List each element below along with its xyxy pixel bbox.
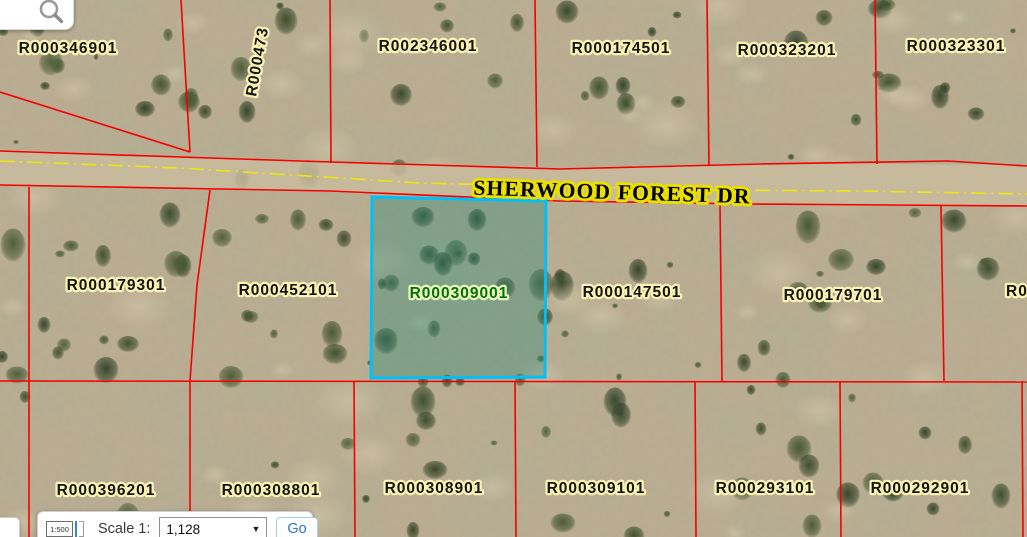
parcel-label: R000323201 [738, 42, 837, 59]
corner-toolbar-partial[interactable] [0, 517, 20, 537]
parcel-overlay: SHERWOOD FOREST DR R000346901 R002346001… [0, 0, 1027, 537]
scale-combobox[interactable]: ▼ [159, 517, 267, 537]
parcel-label: R000346901 [19, 40, 118, 57]
parcel-label: R000293101 [716, 480, 815, 497]
parcel-label: R000174501 [572, 40, 671, 57]
parcel-label: R000452101 [239, 282, 338, 299]
parcel-label: R000179701 [784, 287, 883, 304]
parcel-label: R000292901 [871, 480, 970, 497]
parcel-label: R000308801 [222, 482, 321, 499]
chevron-down-icon[interactable]: ▼ [251, 524, 266, 534]
parcel-labels-bottom: R000396201 R000308801 R000308901 R000309… [57, 480, 970, 499]
parcel-label: R000323301 [907, 38, 1006, 55]
parcel-label: R000396201 [57, 482, 156, 499]
search-icon[interactable] [37, 0, 65, 26]
parcel-label: R002346001 [379, 38, 478, 55]
search-panel[interactable] [0, 0, 74, 30]
parcel-label: R000179301 [67, 277, 166, 294]
bracket-icon [79, 521, 84, 537]
scale-label: Scale 1: [98, 521, 150, 537]
parcel-label: R000308901 [385, 480, 484, 497]
parcel-label: R000309101 [547, 480, 646, 497]
selected-parcel-label: R000309001 [410, 285, 509, 302]
scale-panel: 1:500 Scale 1: ▼ Go [37, 511, 313, 537]
map-viewport[interactable]: SHERWOOD FOREST DR R000346901 R002346001… [0, 0, 1027, 537]
parcel-label-vertical: R000473 [243, 26, 272, 98]
parcel-labels-top: R000346901 R002346001 R000174501 R000323… [19, 26, 1006, 98]
scale-ratio-icon: 1:500 [46, 521, 73, 537]
parcel-label-partial: R0 [1006, 283, 1027, 300]
scale-value-input[interactable] [160, 522, 244, 537]
go-button[interactable]: Go [276, 517, 317, 537]
text-cursor-icon [75, 521, 77, 537]
parcel-label: R000147501 [583, 284, 682, 301]
